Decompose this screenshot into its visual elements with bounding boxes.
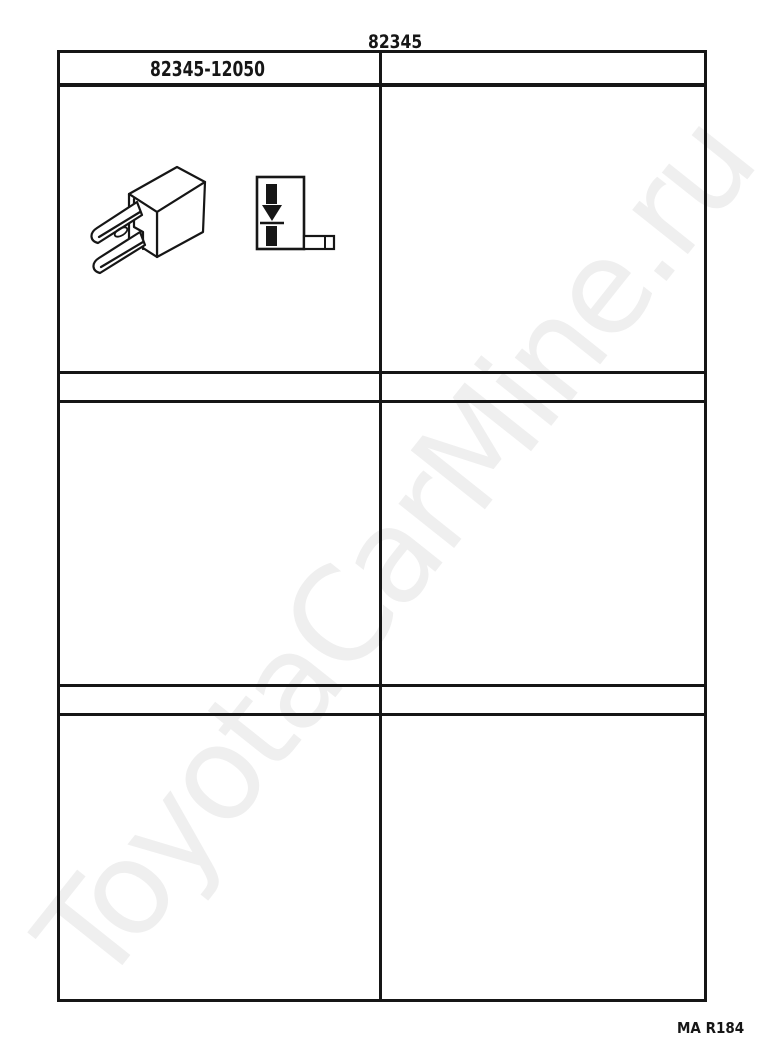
page-code: MA R184 [677,1019,744,1037]
grid-row-band-2-top [57,684,707,687]
grid-column-divider [379,50,382,1002]
diode-cathode-bar [266,226,277,246]
part-number-label: 82345-12050 [150,57,265,81]
relay-diode-part-drawing [85,155,345,295]
grid-row-band-1-top [57,371,707,374]
diode-symbol-frame [257,177,304,249]
grid-row-band-1-bottom [57,400,707,403]
grid-row-band-2-bottom [57,713,707,716]
page-title: 82345 [368,31,422,53]
diode-anode-bar [266,184,277,204]
grid-header-divider [57,83,707,87]
diode-circuit-symbol [257,177,334,249]
diode-symbol-tab [304,236,334,249]
parts-catalog-page: ToyotaCarMine.ru 82345 82345-12050 [0,0,776,1064]
